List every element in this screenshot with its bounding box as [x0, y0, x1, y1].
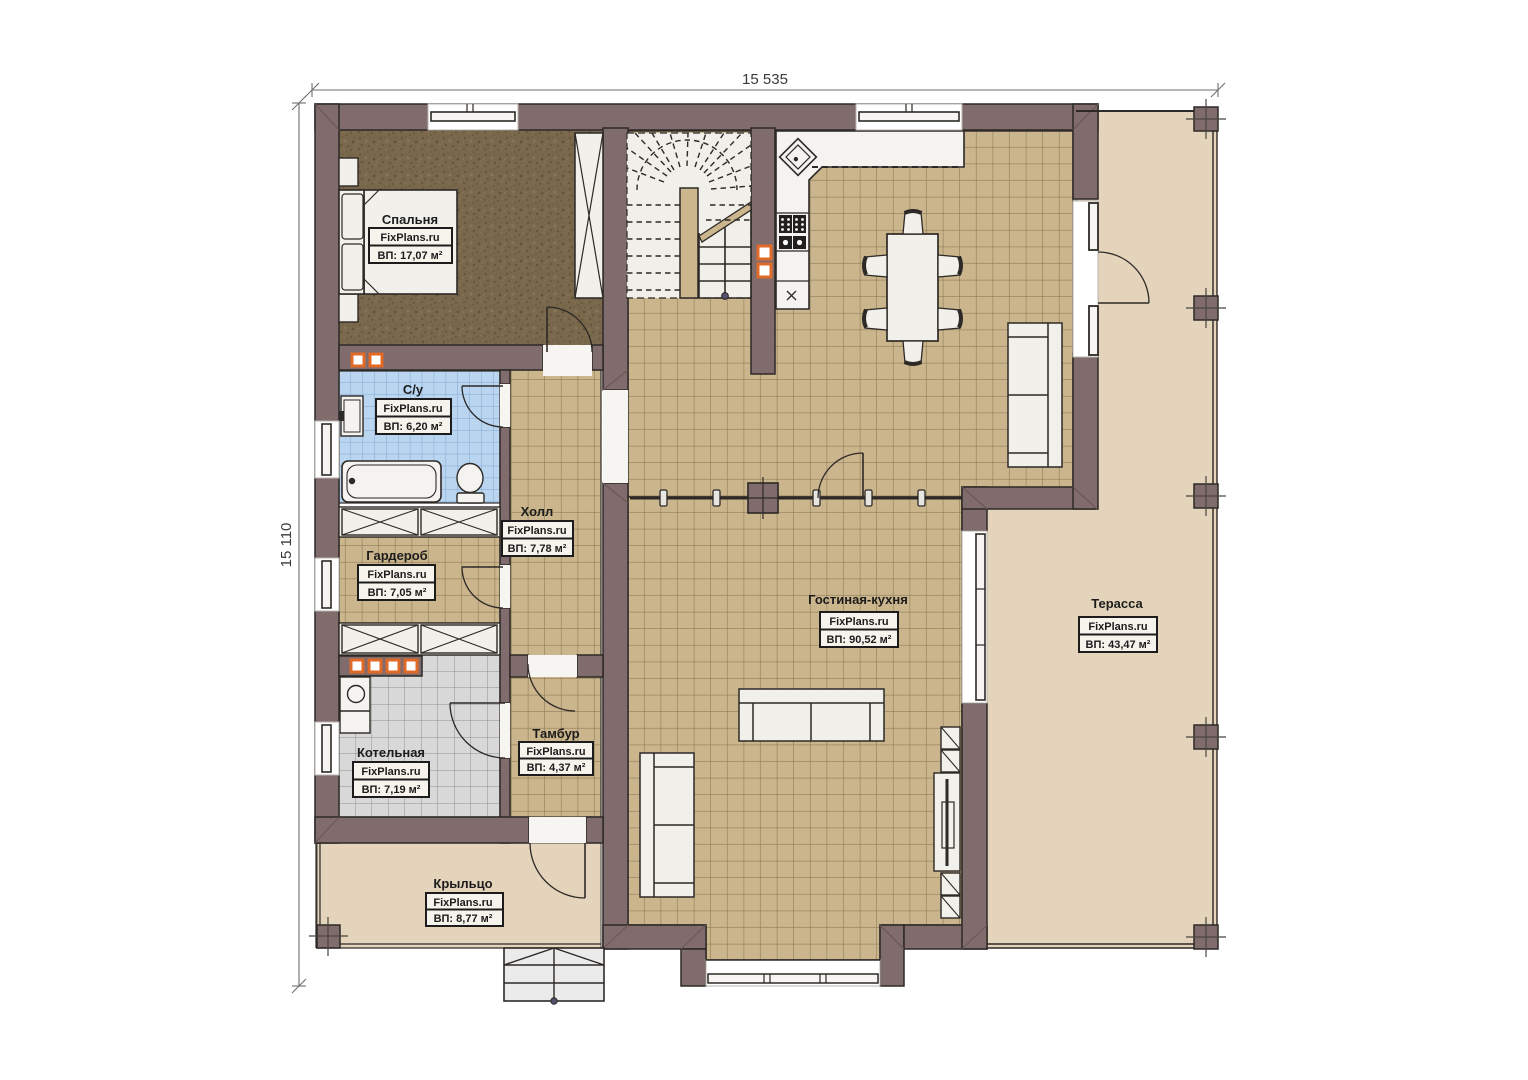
- svg-text:FixPlans.ru: FixPlans.ru: [1088, 621, 1147, 633]
- svg-text:FixPlans.ru: FixPlans.ru: [829, 616, 888, 628]
- svg-text:Крыльцо: Крыльцо: [433, 876, 492, 891]
- svg-text:FixPlans.ru: FixPlans.ru: [526, 746, 585, 758]
- svg-text:ВП: 90,52 м²: ВП: 90,52 м²: [827, 634, 892, 646]
- svg-text:Терасса: Терасса: [1091, 596, 1143, 611]
- svg-text:FixPlans.ru: FixPlans.ru: [380, 232, 439, 244]
- svg-text:ВП: 43,47 м²: ВП: 43,47 м²: [1086, 639, 1151, 651]
- svg-text:15 110: 15 110: [278, 523, 295, 568]
- svg-text:Котельная: Котельная: [357, 745, 425, 760]
- svg-text:FixPlans.ru: FixPlans.ru: [507, 525, 566, 537]
- svg-text:FixPlans.ru: FixPlans.ru: [383, 403, 442, 415]
- svg-text:ВП: 4,37 м²: ВП: 4,37 м²: [527, 762, 586, 774]
- svg-text:Гостиная-кухня: Гостиная-кухня: [808, 592, 908, 607]
- svg-text:ВП: 8,77 м²: ВП: 8,77 м²: [434, 913, 493, 925]
- svg-text:Спальня: Спальня: [382, 212, 438, 227]
- svg-text:ВП: 17,07 м²: ВП: 17,07 м²: [378, 250, 443, 262]
- svg-text:Гардероб: Гардероб: [366, 548, 427, 563]
- svg-text:ВП: 7,19 м²: ВП: 7,19 м²: [362, 784, 421, 796]
- svg-text:FixPlans.ru: FixPlans.ru: [433, 897, 492, 909]
- svg-text:ВП: 7,78 м²: ВП: 7,78 м²: [508, 543, 567, 555]
- svg-text:15 535: 15 535: [742, 71, 788, 88]
- svg-text:Тамбур: Тамбур: [532, 726, 579, 741]
- svg-text:FixPlans.ru: FixPlans.ru: [367, 569, 426, 581]
- svg-text:Холл: Холл: [521, 504, 554, 519]
- svg-text:ВП: 7,05 м²: ВП: 7,05 м²: [368, 587, 427, 599]
- svg-text:FixPlans.ru: FixPlans.ru: [361, 766, 420, 778]
- svg-text:ВП: 6,20 м²: ВП: 6,20 м²: [384, 421, 443, 433]
- svg-text:С/у: С/у: [403, 382, 424, 397]
